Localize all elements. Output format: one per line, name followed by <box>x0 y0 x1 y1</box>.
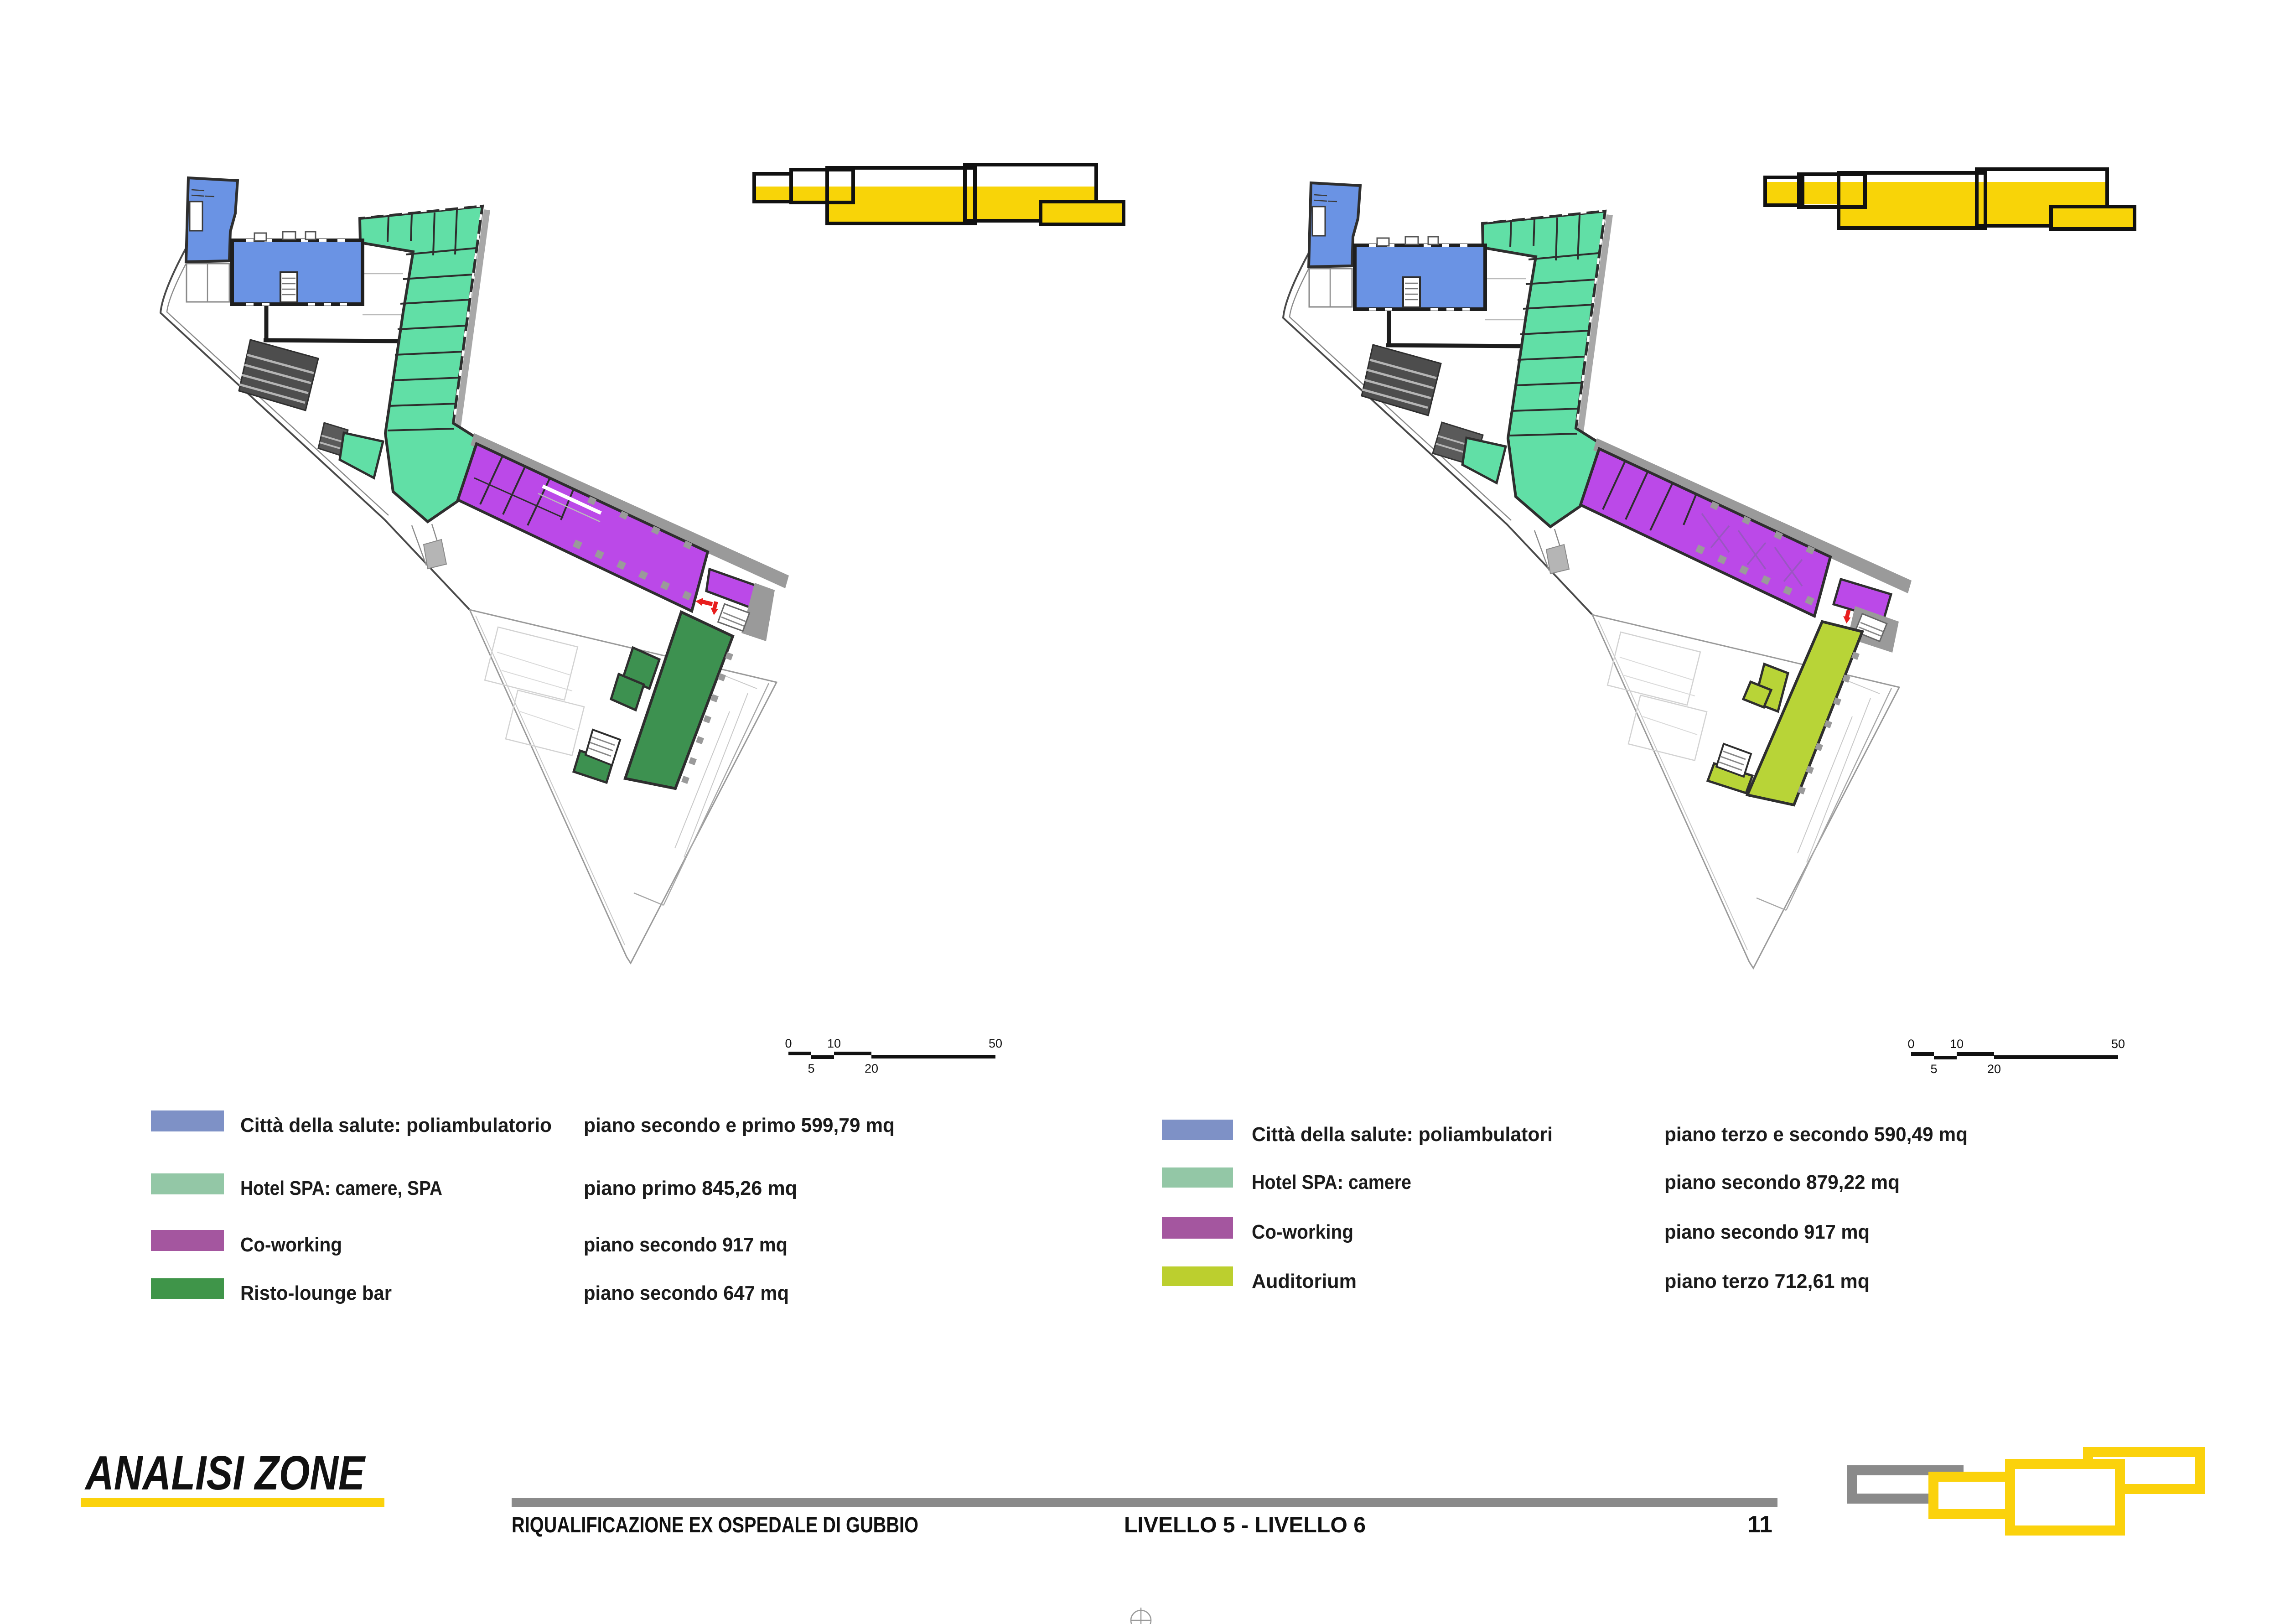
svg-text:Co-working: Co-working <box>240 1234 342 1256</box>
svg-text:piano terzo 712,61 mq: piano terzo 712,61 mq <box>1664 1270 1870 1292</box>
svg-text:piano secondo e primo 599,79: piano secondo e primo 599,79 mq <box>584 1114 895 1136</box>
svg-text:piano secondo 917 mq: piano secondo 917 mq <box>1664 1221 1870 1243</box>
svg-text:RIQUALIFICAZIONE EX OSPEDALE D: RIQUALIFICAZIONE EX OSPEDALE DI GUBBIO <box>512 1513 918 1537</box>
svg-text:Auditorium: Auditorium <box>1252 1270 1357 1292</box>
svg-text:Hotel SPA: camere, SPA: Hotel SPA: camere, SPA <box>240 1177 442 1199</box>
svg-text:5: 5 <box>1930 1062 1937 1076</box>
svg-text:Hotel SPA: camere: Hotel SPA: camere <box>1252 1171 1411 1193</box>
svg-text:20: 20 <box>865 1062 878 1075</box>
svg-text:11: 11 <box>1747 1511 1772 1538</box>
svg-text:Città della salute: poliambula: Città della salute: poliambulatori <box>1252 1123 1553 1146</box>
svg-text:50: 50 <box>2111 1037 2125 1051</box>
svg-text:ANALISI ZONE: ANALISI ZONE <box>84 1446 366 1500</box>
svg-text:piano secondo 917 mq: piano secondo 917 mq <box>584 1234 788 1256</box>
svg-text:Co-working: Co-working <box>1252 1221 1353 1243</box>
svg-text:piano terzo e secondo 590,49: piano terzo e secondo 590,49 mq <box>1664 1123 1968 1146</box>
svg-text:Risto-lounge bar: Risto-lounge bar <box>240 1282 392 1304</box>
svg-text:LIVELLO 5 - LIVELLO 6: LIVELLO 5 - LIVELLO 6 <box>1124 1513 1366 1537</box>
svg-text:50: 50 <box>989 1037 1002 1050</box>
svg-text:piano secondo 647 mq: piano secondo 647 mq <box>584 1282 789 1304</box>
svg-text:5: 5 <box>808 1062 814 1075</box>
svg-text:0: 0 <box>785 1037 792 1050</box>
svg-text:10: 10 <box>1950 1037 1964 1051</box>
svg-text:piano primo 845,26 mq: piano primo 845,26 mq <box>584 1177 797 1199</box>
svg-text:0: 0 <box>1907 1037 1914 1051</box>
svg-text:10: 10 <box>827 1037 841 1050</box>
svg-text:20: 20 <box>1987 1062 2001 1076</box>
svg-text:Città della salute: poliambula: Città della salute: poliambulatorio <box>240 1114 552 1136</box>
svg-text:piano secondo 879,22 mq: piano secondo 879,22 mq <box>1664 1171 1900 1193</box>
